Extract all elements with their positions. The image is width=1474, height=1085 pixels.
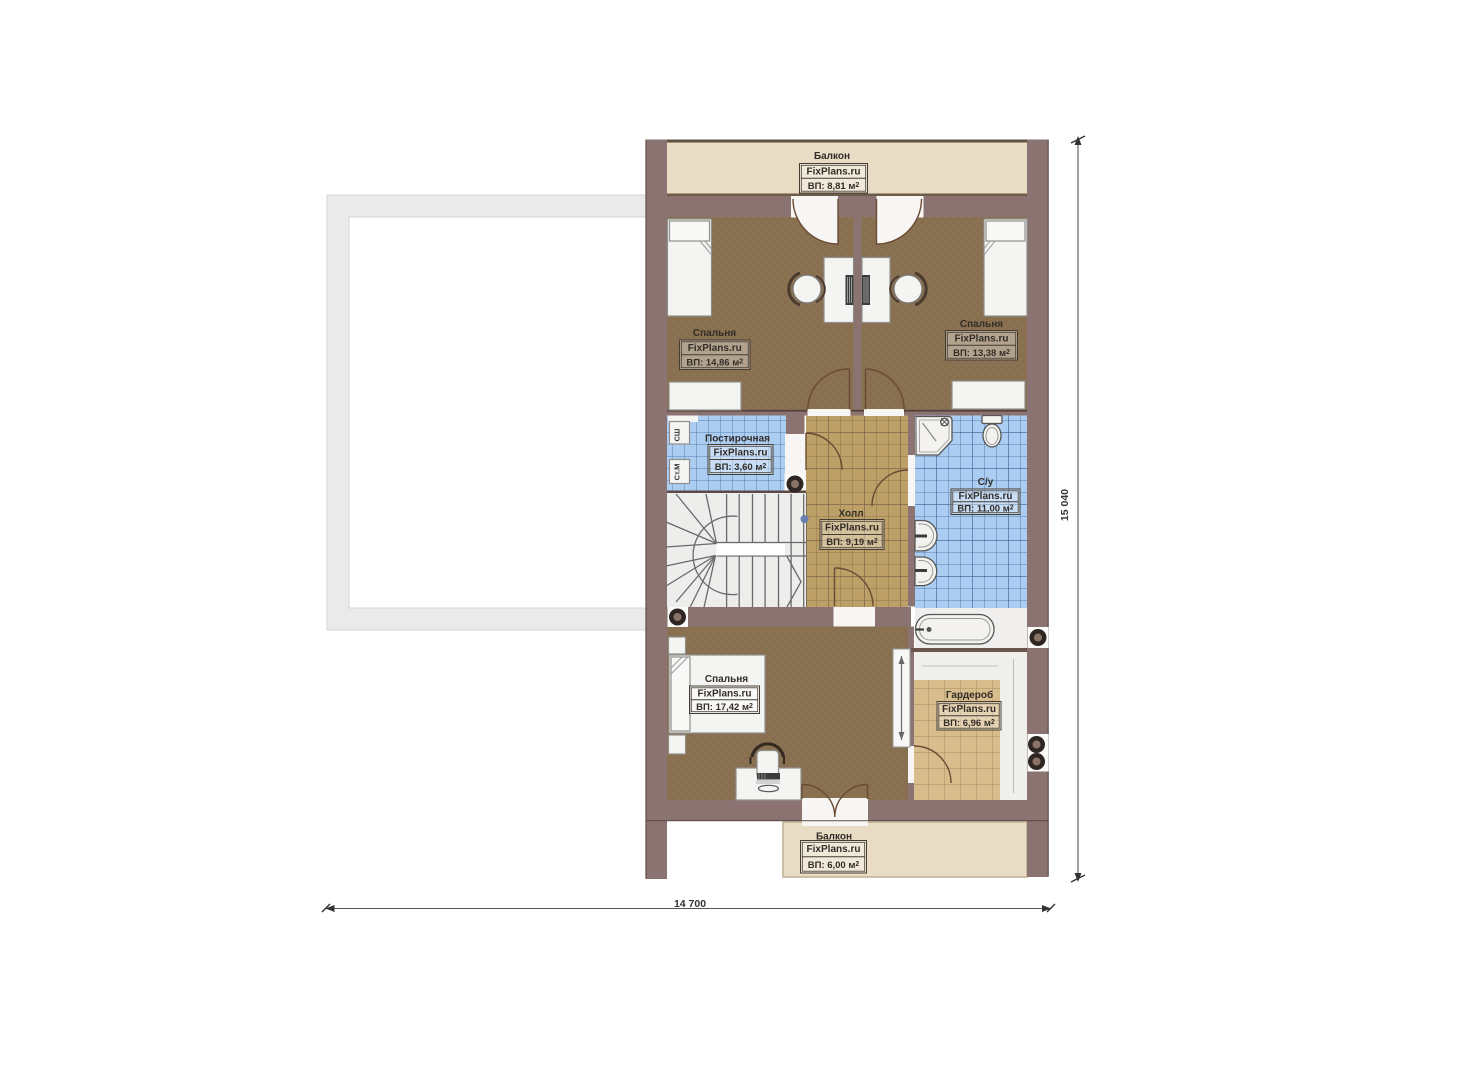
svg-text:FixPlans.ru: FixPlans.ru (688, 343, 742, 354)
svg-text:Спальня: Спальня (960, 319, 1003, 330)
svg-text:ВП: 8,81 м2: ВП: 8,81 м2 (808, 181, 860, 192)
svg-text:СШ: СШ (673, 428, 682, 441)
svg-text:15 040: 15 040 (1059, 489, 1071, 521)
svg-text:ВП: 13,38 м2: ВП: 13,38 м2 (953, 348, 1010, 359)
svg-text:FixPlans.ru: FixPlans.ru (807, 166, 861, 177)
svg-text:С/у: С/у (978, 477, 994, 488)
svg-text:14 700: 14 700 (674, 898, 706, 910)
svg-text:FixPlans.ru: FixPlans.ru (698, 688, 752, 699)
svg-text:Постирочная: Постирочная (705, 434, 770, 445)
svg-text:FixPlans.ru: FixPlans.ru (807, 844, 861, 855)
svg-text:ВП: 9,19 м2: ВП: 9,19 м2 (826, 537, 878, 548)
svg-text:Спальня: Спальня (705, 674, 748, 685)
svg-text:Холл: Холл (838, 509, 863, 520)
svg-text:FixPlans.ru: FixPlans.ru (714, 448, 768, 459)
svg-text:ВП: 11,00 м2: ВП: 11,00 м2 (957, 503, 1013, 514)
svg-text:Спальня: Спальня (693, 328, 736, 339)
svg-text:ВП: 6,00 м2: ВП: 6,00 м2 (808, 860, 860, 871)
svg-text:Балкон: Балкон (814, 151, 850, 162)
svg-text:Гардероб: Гардероб (946, 689, 993, 701)
svg-text:ВП: 17,42 м2: ВП: 17,42 м2 (696, 702, 753, 713)
svg-text:ВП: 6,96 м2: ВП: 6,96 м2 (943, 718, 995, 729)
svg-text:FixPlans.ru: FixPlans.ru (959, 491, 1013, 502)
svg-text:FixPlans.ru: FixPlans.ru (955, 333, 1009, 344)
svg-text:FixPlans.ru: FixPlans.ru (942, 704, 996, 715)
svg-text:Ст.М: Ст.М (673, 464, 682, 481)
svg-text:ВП: 3,60 м2: ВП: 3,60 м2 (715, 462, 767, 473)
svg-text:FixPlans.ru: FixPlans.ru (825, 523, 879, 534)
svg-text:ВП: 14,86 м2: ВП: 14,86 м2 (686, 357, 743, 368)
